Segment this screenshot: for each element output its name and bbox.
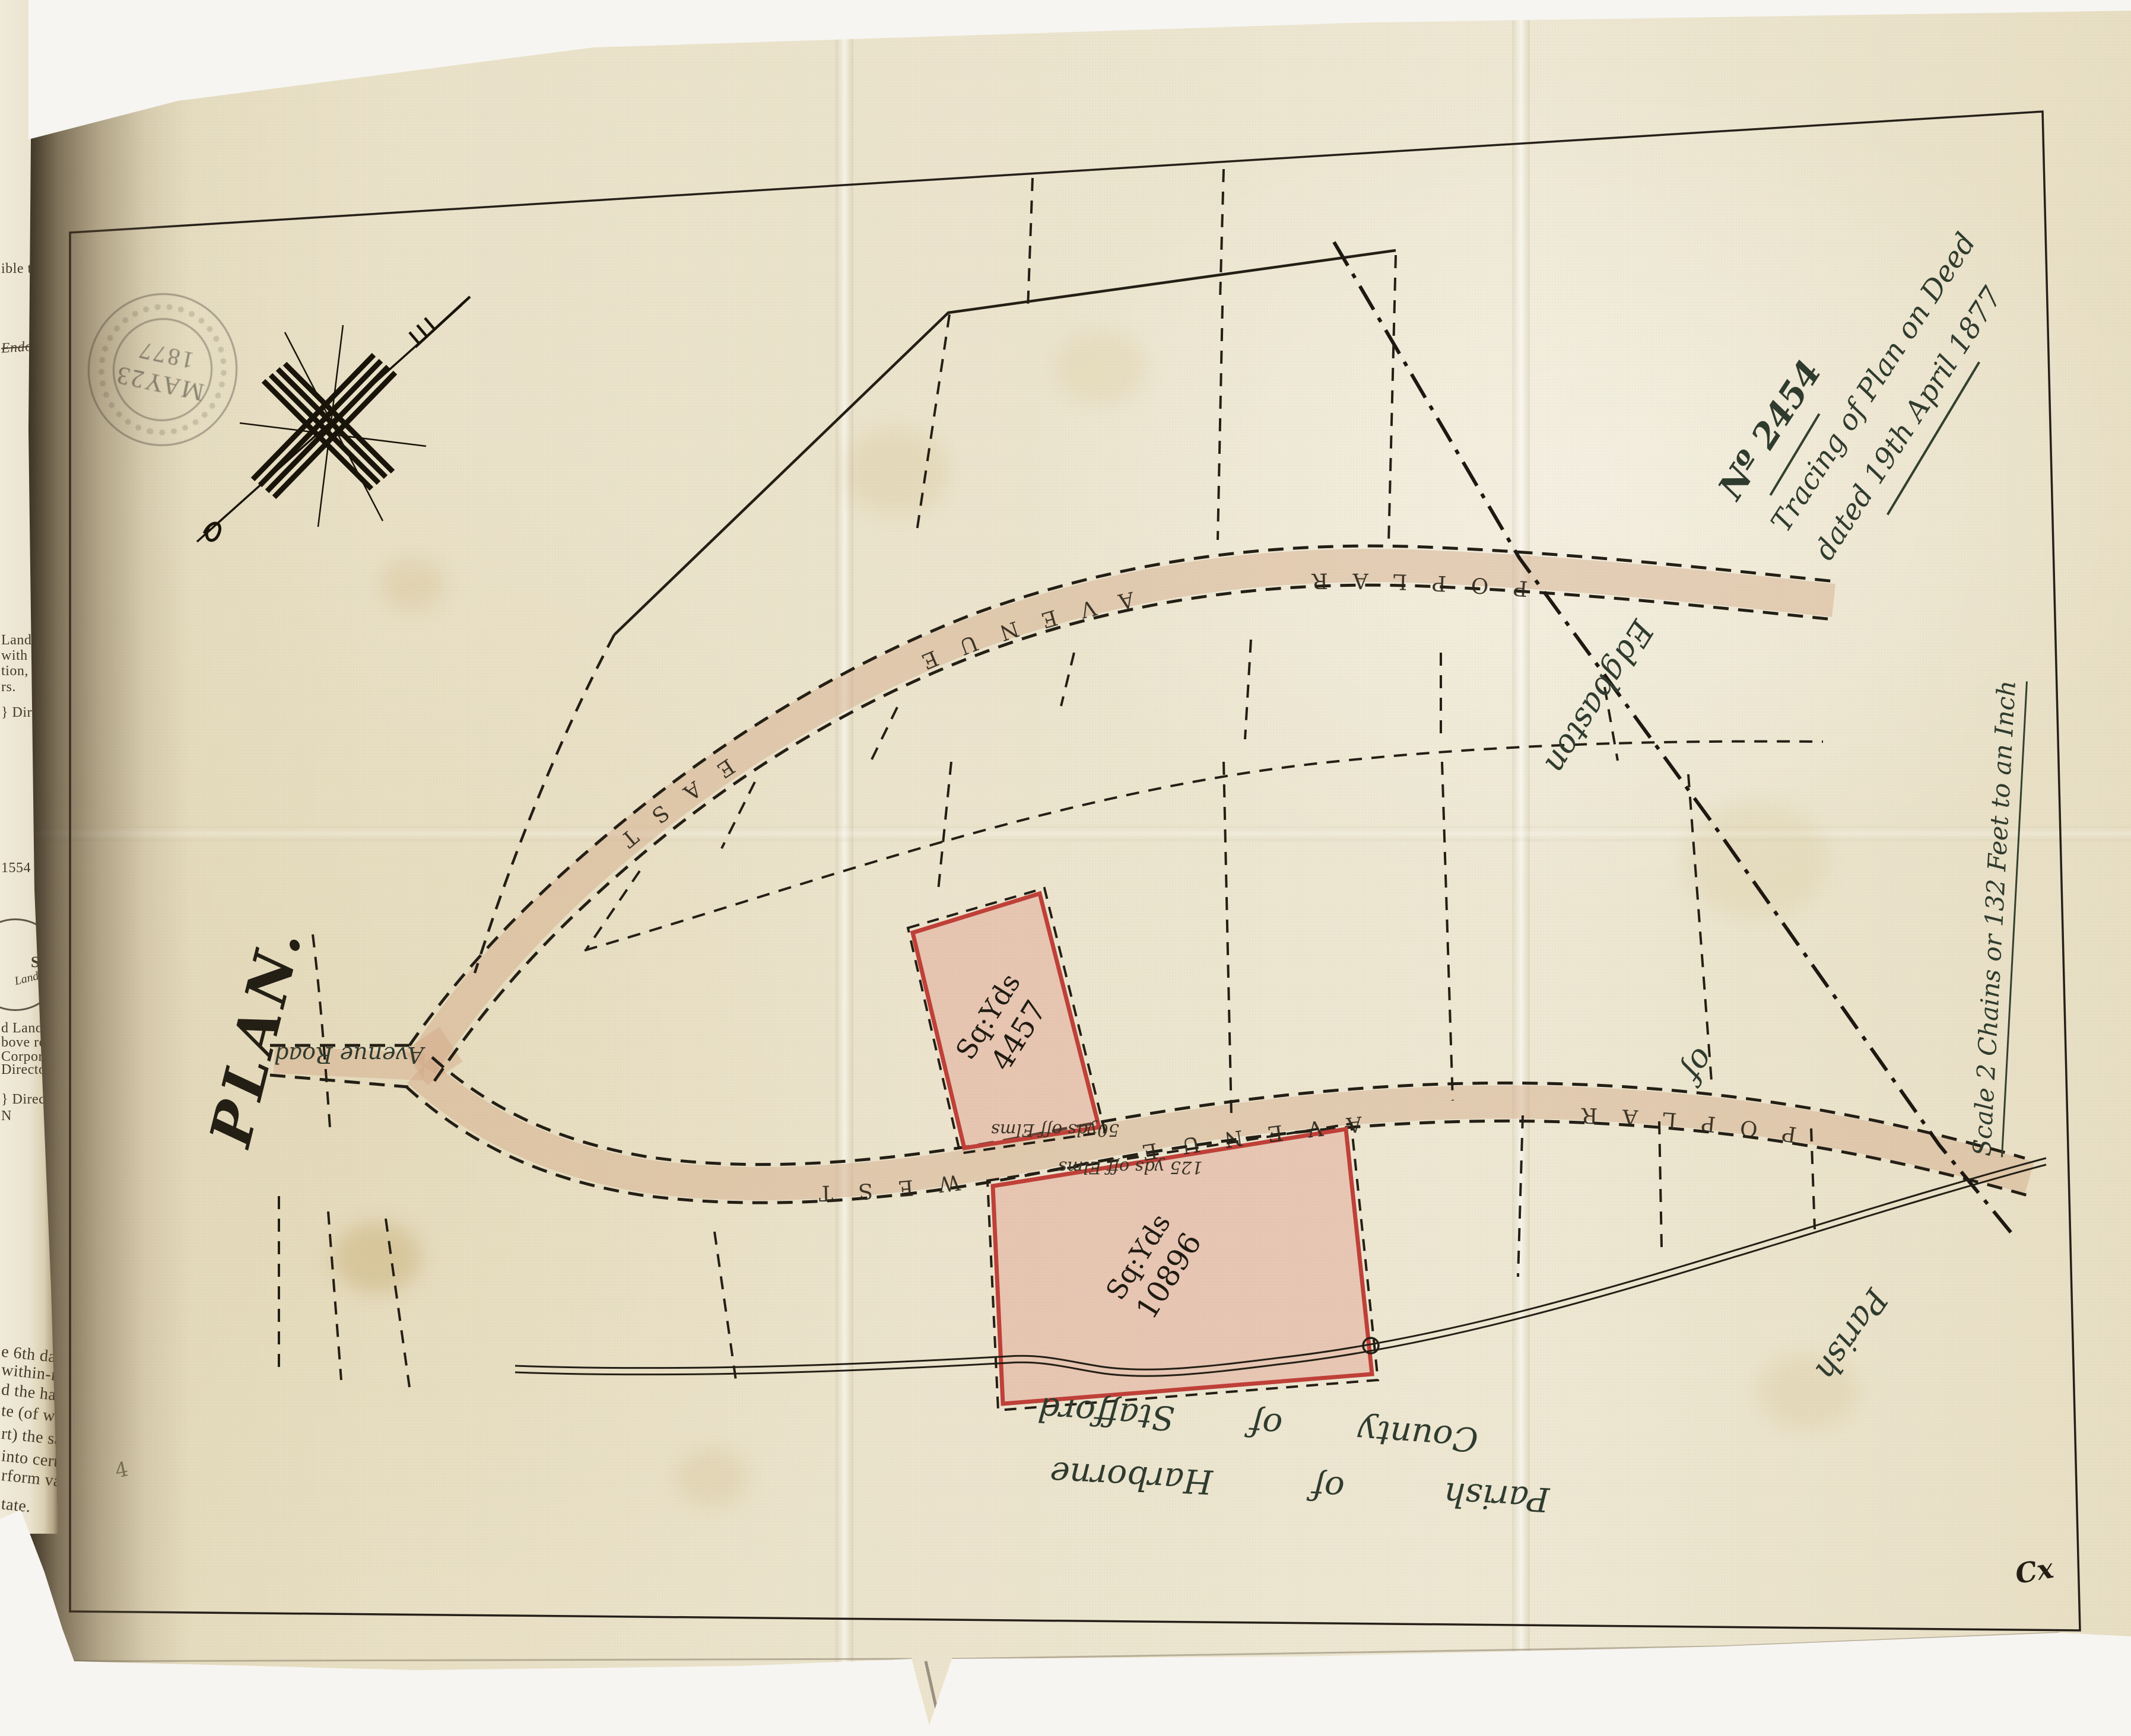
east-label: EAST	[597, 753, 739, 868]
page-fragment: te (of whi	[1, 1401, 59, 1427]
svg-text:EAST: EAST	[597, 753, 739, 868]
avenue-road-label: Avenue Road	[274, 1042, 424, 1068]
page-fragment: rs.	[1, 679, 16, 695]
roads	[274, 565, 2030, 1184]
page-fragment: rt) the sa	[1, 1425, 59, 1450]
page-fragment: with	[1, 648, 28, 664]
tree-note-50yds: 50yds off Elms	[991, 1120, 1119, 1140]
page-fragment: N	[1, 1108, 12, 1124]
tree-note-125yds: 125 yds off Elms	[1058, 1158, 1203, 1178]
surveyor-corner-mark: Cx	[2013, 1552, 2056, 1590]
date-stamp: MAY23 1877	[74, 279, 252, 460]
page-fragment: Land	[1, 632, 31, 648]
scanned-plan-page: POPLAR AVENUE EAST POPLAR AVENUE WEST Nº…	[0, 0, 2131, 1736]
north-arrow-feather	[409, 297, 470, 347]
compass-south-scribble	[204, 523, 220, 540]
